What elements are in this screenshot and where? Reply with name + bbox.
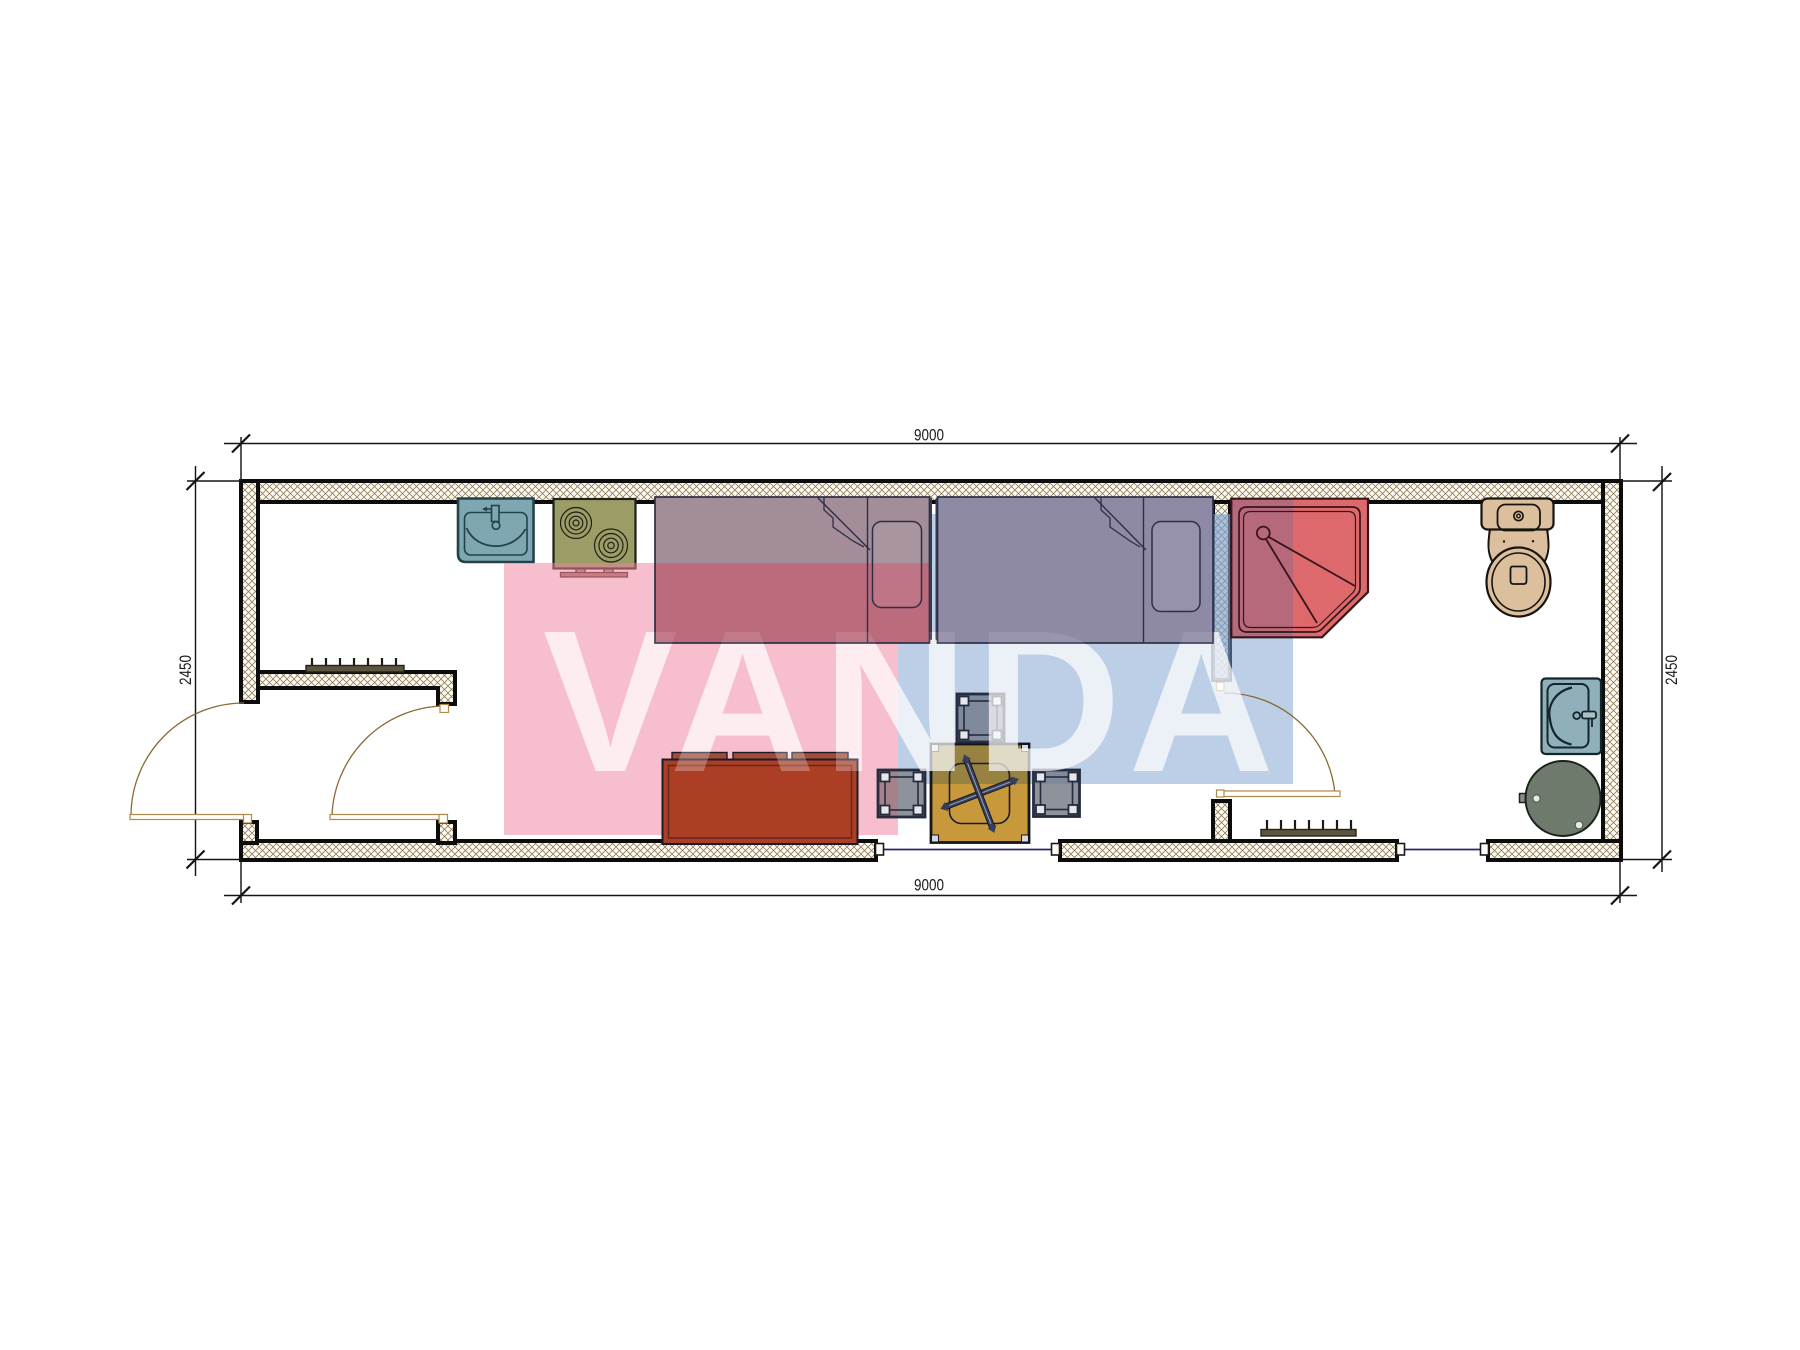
svg-text:2450: 2450 xyxy=(177,655,195,685)
svg-text:9000: 9000 xyxy=(914,427,944,445)
svg-text:2450: 2450 xyxy=(1663,655,1681,685)
svg-text:9000: 9000 xyxy=(914,877,944,895)
svg-text:VANDA: VANDA xyxy=(543,588,1281,814)
